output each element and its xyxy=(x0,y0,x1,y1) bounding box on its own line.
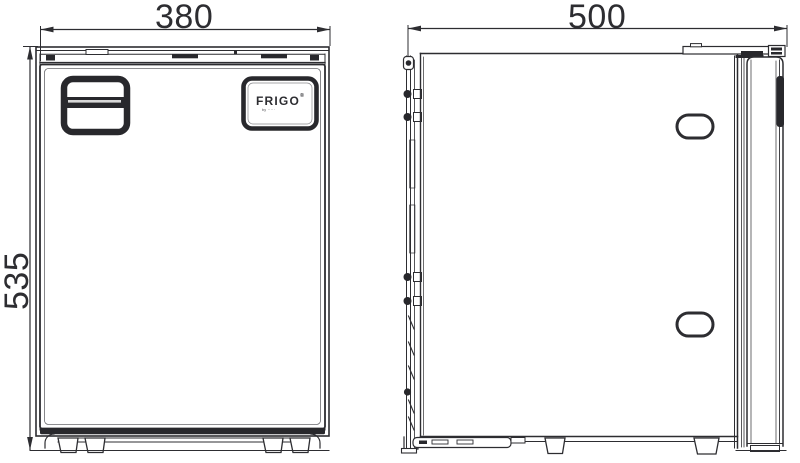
flange-end-mark-1 xyxy=(771,48,782,51)
flange-notch xyxy=(691,44,702,47)
rail-knob-2 xyxy=(404,113,412,121)
base-tab xyxy=(511,438,525,444)
rail-knob-5 xyxy=(404,388,411,395)
side-base xyxy=(402,437,738,454)
rail-hatch-4 xyxy=(409,400,415,413)
rim-end-block-left xyxy=(46,55,55,61)
dimension-front-height: 535 xyxy=(0,47,38,451)
rail-knob-3 xyxy=(404,273,412,281)
flange-dark-tab xyxy=(741,51,763,55)
rail-knob-0 xyxy=(406,60,412,66)
brand-badge: FRIGO ® by ····· xyxy=(244,79,317,129)
vent-slot-lower xyxy=(677,313,713,336)
arrowhead-right-icon xyxy=(774,26,787,32)
front-view: FRIGO ® by ····· xyxy=(30,47,329,453)
flange-end-mark-2 xyxy=(771,52,782,55)
arrowhead-left-icon xyxy=(41,27,54,33)
rail-hatch-2 xyxy=(409,342,415,355)
rim-tab-dark-left xyxy=(172,55,198,59)
rim-pin xyxy=(234,51,237,55)
technical-drawing: FRIGO ® by ····· 380 535 xyxy=(0,0,800,463)
dimension-side-depth-value: 500 xyxy=(568,0,626,36)
handle-side-profile xyxy=(777,76,785,127)
handle-grip-slot xyxy=(68,100,121,103)
mounting-rail xyxy=(404,56,422,451)
rail-knob-4 xyxy=(404,297,412,305)
base-bracket xyxy=(413,438,511,448)
brand-trademark: ® xyxy=(300,92,304,99)
vent-slot-upper xyxy=(677,115,713,138)
brand-subtext: by ····· xyxy=(262,108,275,112)
rail-knob-1 xyxy=(404,90,412,98)
foot-side-1 xyxy=(545,438,565,454)
arrowhead-down-icon xyxy=(27,437,33,450)
top-flange xyxy=(683,44,785,57)
flange-end-block xyxy=(769,46,786,57)
foot-side-2 xyxy=(694,438,719,454)
base-bracket-mark xyxy=(419,441,427,445)
arrowhead-left-icon xyxy=(408,26,421,32)
rail-hatch-3 xyxy=(409,366,415,379)
rim-tab-outline xyxy=(86,50,108,55)
dimension-front-width-value: 380 xyxy=(155,0,213,36)
arrowhead-up-icon xyxy=(27,47,33,60)
arrowhead-right-icon xyxy=(317,27,330,33)
rail-hatch-1 xyxy=(409,316,415,329)
front-base xyxy=(30,428,329,453)
brand-name: FRIGO xyxy=(256,94,300,108)
side-view xyxy=(402,44,787,454)
rim-tab-dark-right xyxy=(261,55,287,59)
rear-foot-pad xyxy=(402,449,417,454)
rail-hatch-5 xyxy=(409,417,415,430)
door-bottom-edge xyxy=(40,428,325,434)
cabinet-side xyxy=(421,54,738,449)
door-side xyxy=(736,57,786,452)
rim-end-block-right xyxy=(310,55,319,61)
